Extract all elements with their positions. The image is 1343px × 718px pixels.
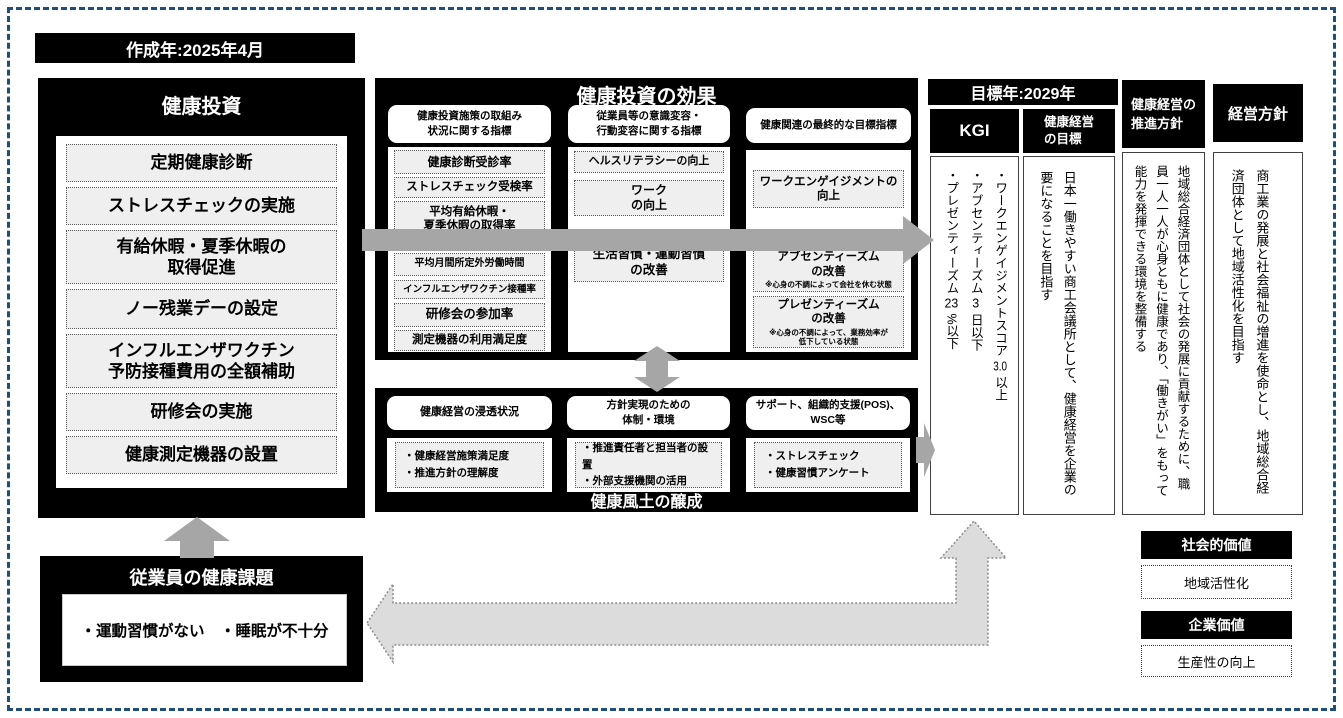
health-culture-section: 健康経営の浸透状況 ・健康経営施策満足度 ・推進方針の理解度 方針実現のための … [375, 388, 918, 512]
arrow-culture-to-goal [916, 423, 936, 477]
culture-col3-panel: ・ストレスチェック ・健康習慣アンケート [746, 438, 910, 492]
investment-item: 研修会の実施 [66, 393, 337, 431]
arrow-gap [753, 154, 904, 170]
kgi-panel: ・ワークエンゲイジメントスコア 3.0 以上 ・アブセンティーズム 3 日以下 … [930, 156, 1019, 515]
effect-indicator: ストレスチェック受検率 [394, 177, 545, 198]
promotion-policy-panel: 地域総合経済団体として社会の発展に貢献するために、職員一人一人が心身ともに健康で… [1122, 152, 1205, 515]
effect-indicator: ワーク の向上 [574, 180, 724, 216]
culture-col2-panel: ・推進責任者と担当者の設置 ・外部支援機関の活用 [567, 438, 730, 492]
culture-col1-panel: ・健康経営施策満足度 ・推進方針の理解度 [387, 438, 552, 492]
health-investment-title: 健康投資 [38, 90, 365, 119]
management-policy-body: 商工業の発展と社会福祉の増進を使命とし、地域総合経済団体として地域活性化を目指す [1214, 153, 1283, 514]
indicator-label: プレゼンティーズム の改善 [777, 298, 879, 327]
management-policy-panel: 商工業の発展と社会福祉の増進を使命とし、地域総合経済団体として地域活性化を目指す [1213, 152, 1303, 515]
management-goal-body: 日本一働きやすい商工会議所として、健康経営を企業の要になることを目指す [1024, 157, 1091, 514]
effect-col3-header: 健康関連の最終的な目標指標 [746, 108, 911, 143]
corporate-value-header: 企業価値 [1141, 611, 1292, 639]
created-year-banner: 作成年:2025年4月 [35, 33, 355, 63]
management-goal-panel: 日本一働きやすい商工会議所として、健康経営を企業の要になることを目指す [1023, 156, 1115, 515]
culture-col1-header: 健康経営の浸透状況 [387, 396, 552, 430]
kgi-body: ・ワークエンゲイジメントスコア 3.0 以上 ・アブセンティーズム 3 日以下 … [931, 157, 1019, 514]
culture-col3-header: サポート、組織的支援(POS)、 WSC等 [746, 396, 910, 430]
kgi-header: KGI [930, 109, 1019, 153]
employee-health-issues-section: 従業員の健康課題 ・運動習慣がない ・睡眠が不十分 [40, 556, 363, 682]
effect-col1-header: 健康投資施策の取組み 状況に関する指標 [388, 105, 551, 143]
kgi-value: 23 [944, 297, 958, 310]
culture-item: ・推進責任者と担当者の設置 ・外部支援機関の活用 [575, 442, 722, 488]
investment-item: 健康測定機器の設置 [66, 436, 337, 474]
management-goal-header: 健康経営 の目標 [1023, 109, 1115, 153]
effect-indicator: インフルエンザワクチン接種率 [394, 280, 545, 299]
corporate-value-item: 生産性の向上 [1141, 645, 1292, 677]
culture-col2-header: 方針実現のための 体制・環境 [567, 396, 730, 430]
investment-item: ノー残業デーの設定 [66, 289, 337, 329]
arrow-issues-to-investment [164, 517, 230, 558]
promotion-policy-body: 地域総合経済団体として社会の発展に貢献するために、職員一人一人が心身ともに健康で… [1123, 153, 1198, 514]
employee-health-issues-body: ・運動習慣がない ・睡眠が不十分 [80, 619, 328, 641]
culture-item: ・ストレスチェック ・健康習慣アンケート [754, 442, 902, 488]
effect-indicator: 測定機器の利用満足度 [394, 330, 545, 351]
arrow-effect-culture-double [634, 346, 680, 392]
effect-goal-indicator: ワークエンゲイジメントの 向上 [753, 170, 904, 208]
effect-col2-header: 従業員等の意識変容・ 行動変容に関する指標 [568, 105, 730, 143]
employee-health-issues-title: 従業員の健康課題 [40, 564, 363, 590]
investment-item: インフルエンザワクチン 予防接種費用の全額補助 [66, 334, 337, 388]
kgi-item: ・アブセンティーズム 3 日以下 [965, 169, 984, 502]
kgi-item: ・ワークエンゲイジメントスコア 3.0 以上 [990, 169, 1009, 502]
kgi-value: 3 [969, 297, 983, 310]
health-investment-section: 健康投資 定期健康診断 ストレスチェックの実施 有給休暇・夏季休暇の 取得促進 … [38, 78, 365, 518]
target-year-banner: 目標年:2029年 [928, 79, 1118, 105]
investment-item: 有給休暇・夏季休暇の 取得促進 [66, 230, 337, 284]
kgi-item: ・プレゼンティーズム 23 %以下 [941, 169, 960, 502]
effect-indicator: 健康診断受診率 [394, 150, 545, 174]
promotion-policy-header: 健康経営の 推進方針 [1122, 80, 1205, 148]
investment-item: 定期健康診断 [66, 144, 337, 182]
management-policy-header: 経営方針 [1213, 84, 1303, 142]
social-value-header: 社会的価値 [1141, 531, 1292, 559]
investment-item: ストレスチェックの実施 [66, 187, 337, 225]
arrow-investment-to-kgi [362, 216, 937, 264]
arrow-bent-feedback [360, 514, 1015, 679]
indicator-note: ※心身の不調によって、業務効率が 低下している状態 [769, 328, 888, 347]
social-value-item: 地域活性化 [1141, 565, 1292, 599]
kgi-value: 3.0 [993, 360, 1007, 373]
effect-indicator: 研修会の参加率 [394, 303, 545, 327]
health-management-strategy-map: 100 作成年:2025年4月 健康投資 定期健康診断 ストレスチェックの実施 … [0, 0, 1343, 718]
indicator-note: ※心身の不調によって会社を休む状態 [765, 280, 892, 289]
health-investment-panel: 定期健康診断 ストレスチェックの実施 有給休暇・夏季休暇の 取得促進 ノー残業デ… [56, 136, 347, 488]
culture-item: ・健康経営施策満足度 ・推進方針の理解度 [395, 442, 544, 488]
employee-health-issues-box: ・運動習慣がない ・睡眠が不十分 [62, 594, 347, 666]
effect-indicator: ヘルスリテラシーの向上 [574, 151, 724, 173]
effect-goal-indicator: プレゼンティーズム の改善 ※心身の不調によって、業務効率が 低下している状態 [753, 296, 904, 348]
health-culture-title: 健康風土の醸成 [375, 488, 918, 512]
